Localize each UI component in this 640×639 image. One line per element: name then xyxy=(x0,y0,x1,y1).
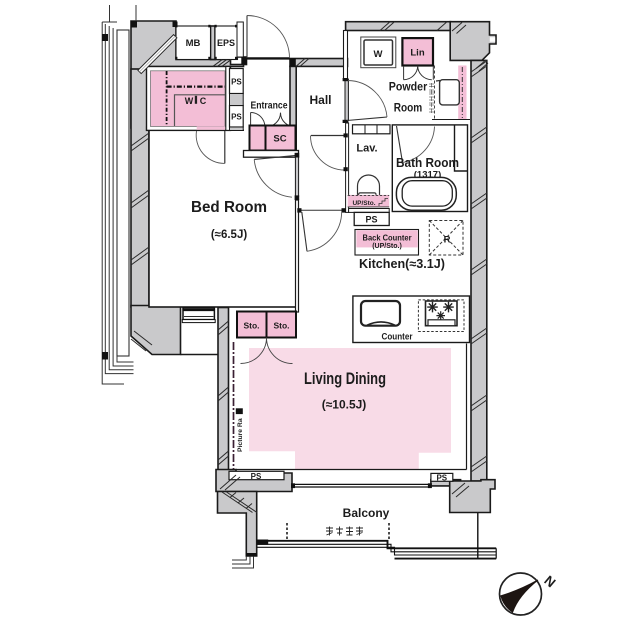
svg-text:(UP/Sto.): (UP/Sto.) xyxy=(372,243,402,250)
svg-text:PS: PS xyxy=(365,215,377,225)
svg-text:EPS: EPS xyxy=(217,38,235,48)
svg-text:(≈6.5J): (≈6.5J) xyxy=(211,229,248,241)
svg-text:Bath Room: Bath Room xyxy=(396,156,459,170)
svg-text:C: C xyxy=(200,96,207,106)
svg-text:Room: Room xyxy=(394,101,423,115)
svg-text:W: W xyxy=(185,96,194,106)
svg-text:SC: SC xyxy=(273,134,286,145)
svg-text:Powder: Powder xyxy=(389,80,428,94)
svg-text:Living Dining: Living Dining xyxy=(304,370,386,388)
svg-text:PS: PS xyxy=(231,113,242,122)
svg-text:Lin: Lin xyxy=(410,48,424,59)
svg-text:Kitchen(≈3.1J): Kitchen(≈3.1J) xyxy=(359,257,445,271)
svg-text:W: W xyxy=(374,49,383,60)
svg-text:Sto.: Sto. xyxy=(243,321,259,331)
svg-text:R: R xyxy=(444,235,451,246)
svg-text:Counter: Counter xyxy=(382,332,413,343)
svg-text:Back Counter: Back Counter xyxy=(363,233,413,243)
svg-text:MB: MB xyxy=(186,38,201,49)
svg-text:(≈10.5J): (≈10.5J) xyxy=(322,398,367,412)
svg-text:Balcony: Balcony xyxy=(343,506,390,520)
svg-text:PS: PS xyxy=(436,474,447,483)
svg-text:Picture Ra: Picture Ra xyxy=(237,418,244,452)
svg-text:Bed Room: Bed Room xyxy=(191,199,267,216)
svg-text:PS: PS xyxy=(251,472,262,481)
svg-text:Entrance: Entrance xyxy=(251,100,288,112)
svg-text:PS: PS xyxy=(231,78,242,87)
svg-text:Lav.: Lav. xyxy=(356,143,377,155)
svg-text:Hall: Hall xyxy=(309,93,331,107)
svg-text:Sto.: Sto. xyxy=(273,321,289,331)
svg-text:UP/Sto.: UP/Sto. xyxy=(352,200,375,207)
